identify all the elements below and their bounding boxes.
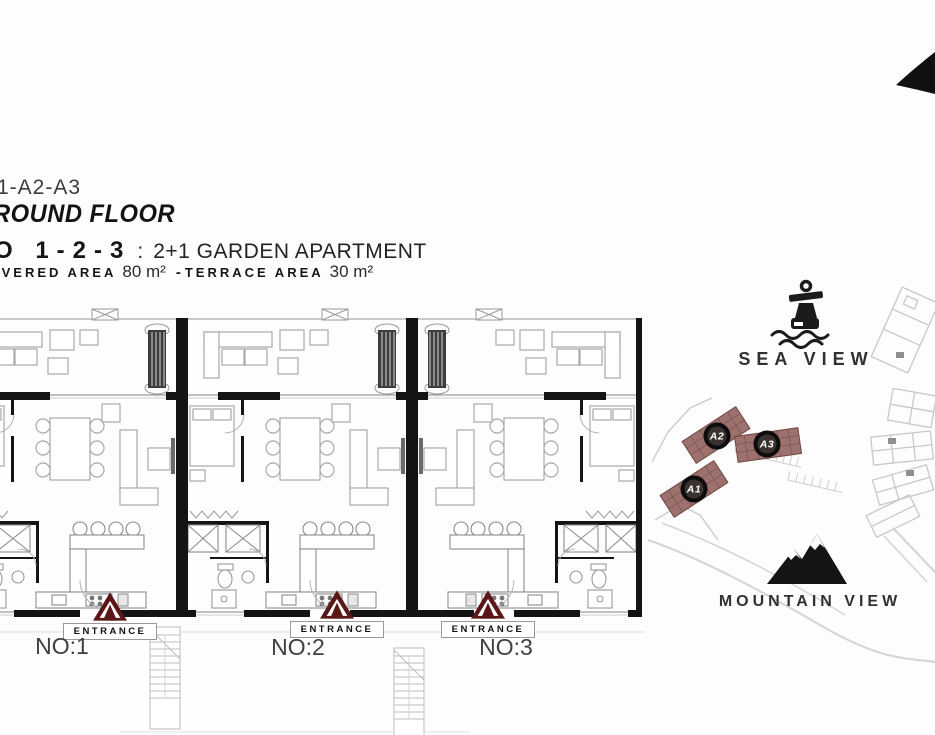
site-marker-label: A3 (760, 438, 774, 450)
terrace-area-label: TERRACE AREA (185, 265, 324, 280)
site-marker-a1: A1 (681, 476, 708, 503)
sea-view-label: SEA VIEW (738, 349, 873, 370)
unit-number-1: NO:1 (35, 633, 89, 660)
entrance-marker-2: ENTRANCE (262, 590, 412, 638)
page: 1-A2-A3 ROUND FLOOR O 1-2-3 : 2+1 GARDEN… (0, 0, 935, 735)
site-marker-label: A1 (687, 483, 701, 495)
unit-plan-2 (182, 309, 412, 617)
area-separator: - (176, 264, 181, 281)
covered-area-value: 80 m² (122, 262, 165, 282)
unit-plan-1 (0, 309, 182, 617)
terrace-area-value: 30 m² (330, 262, 373, 282)
area-line: IVERED AREA 80 m² - TERRACE AREA 30 m² (0, 262, 379, 282)
site-marker-a2: A2 (704, 423, 731, 450)
site-marker-label: A2 (710, 430, 724, 442)
covered-area-label: IVERED AREA (0, 265, 116, 280)
sea-view-icon (772, 282, 828, 348)
entrance-arrow-icon (93, 592, 127, 621)
floor-title: ROUND FLOOR (0, 200, 175, 229)
project-code: 1-A2-A3 (0, 176, 81, 200)
entrance-arrow-icon (320, 590, 354, 619)
unit-plan-3 (412, 309, 642, 617)
unit-numbers: O 1-2-3 (0, 237, 131, 265)
stairs-1 (150, 627, 180, 729)
logo-fragment (896, 52, 935, 94)
mountain-view-icon (767, 534, 847, 584)
unit-number-3: NO:3 (479, 634, 533, 661)
unit-number-2: NO:2 (271, 634, 325, 661)
entrance-marker-3: ENTRANCE (413, 590, 563, 638)
mountain-view-label: MOUNTAIN VIEW (719, 593, 901, 611)
separator-colon: : (137, 240, 143, 264)
unit-numbers-line: O 1-2-3 : 2+1 GARDEN APARTMENT (0, 237, 427, 265)
site-marker-a3: A3 (754, 431, 781, 458)
stairs-2 (394, 648, 424, 735)
apartment-type: 2+1 GARDEN APARTMENT (153, 240, 427, 264)
entrance-arrow-icon (471, 590, 505, 619)
